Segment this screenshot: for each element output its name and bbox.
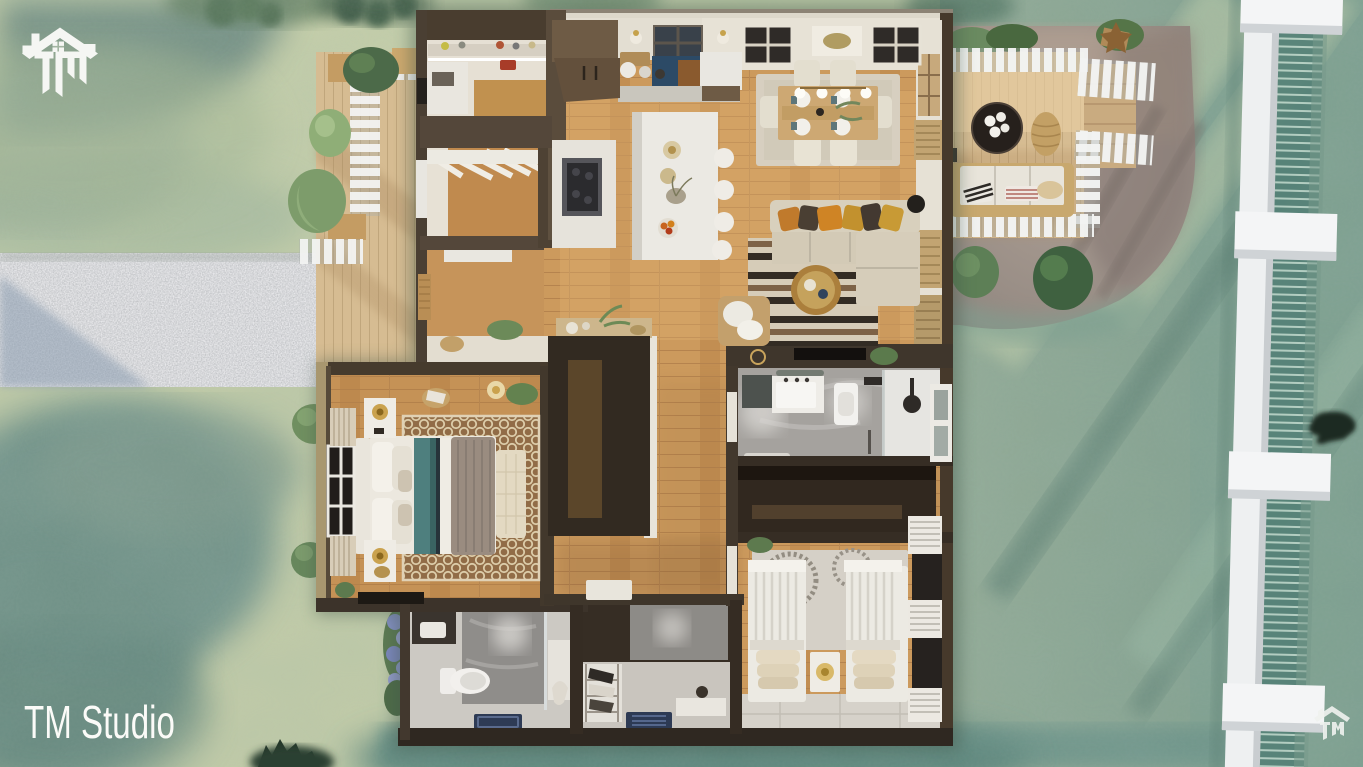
svg-text:TM Studio: TM Studio [24, 698, 175, 748]
